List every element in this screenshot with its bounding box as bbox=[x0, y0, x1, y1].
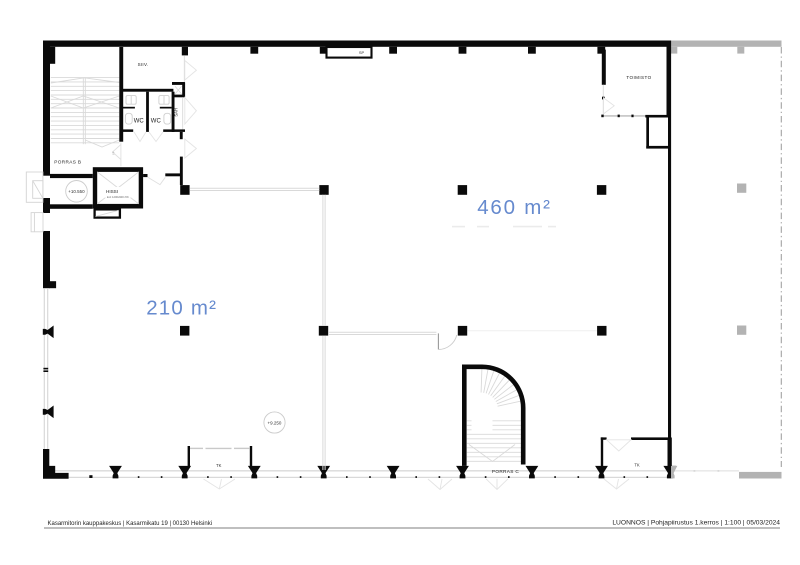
svg-text:YP: YP bbox=[112, 151, 116, 155]
svg-text:Kasarmitorin kauppakeskus | Ka: Kasarmitorin kauppakeskus | Kasarmikatu … bbox=[48, 521, 213, 527]
svg-text:TK: TK bbox=[216, 463, 222, 468]
svg-text:+9.250: +9.250 bbox=[268, 420, 282, 425]
svg-text:SÄH: SÄH bbox=[174, 108, 179, 117]
svg-text:WC: WC bbox=[151, 119, 162, 125]
svg-text:TOIMISTO: TOIMISTO bbox=[626, 75, 651, 80]
svg-text:HISSI: HISSI bbox=[106, 189, 118, 194]
svg-text:LUONNOS | Pohjapiirustus 1.ker: LUONNOS | Pohjapiirustus 1.kerros | 1:10… bbox=[612, 520, 780, 527]
svg-text:PORRAS B: PORRAS B bbox=[54, 159, 81, 164]
svg-text:TK: TK bbox=[634, 463, 640, 468]
svg-text:WC: WC bbox=[134, 119, 145, 125]
svg-text:kori 1200x900 /Oh: kori 1200x900 /Oh bbox=[107, 195, 129, 199]
svg-text:460 m²: 460 m² bbox=[477, 196, 552, 219]
svg-text:+10.550: +10.550 bbox=[68, 189, 85, 194]
svg-text:PORRAS C: PORRAS C bbox=[492, 469, 520, 474]
svg-text:SP: SP bbox=[359, 50, 365, 55]
svg-text:210 m²: 210 m² bbox=[146, 296, 217, 319]
svg-text:SIIV.: SIIV. bbox=[138, 62, 149, 67]
